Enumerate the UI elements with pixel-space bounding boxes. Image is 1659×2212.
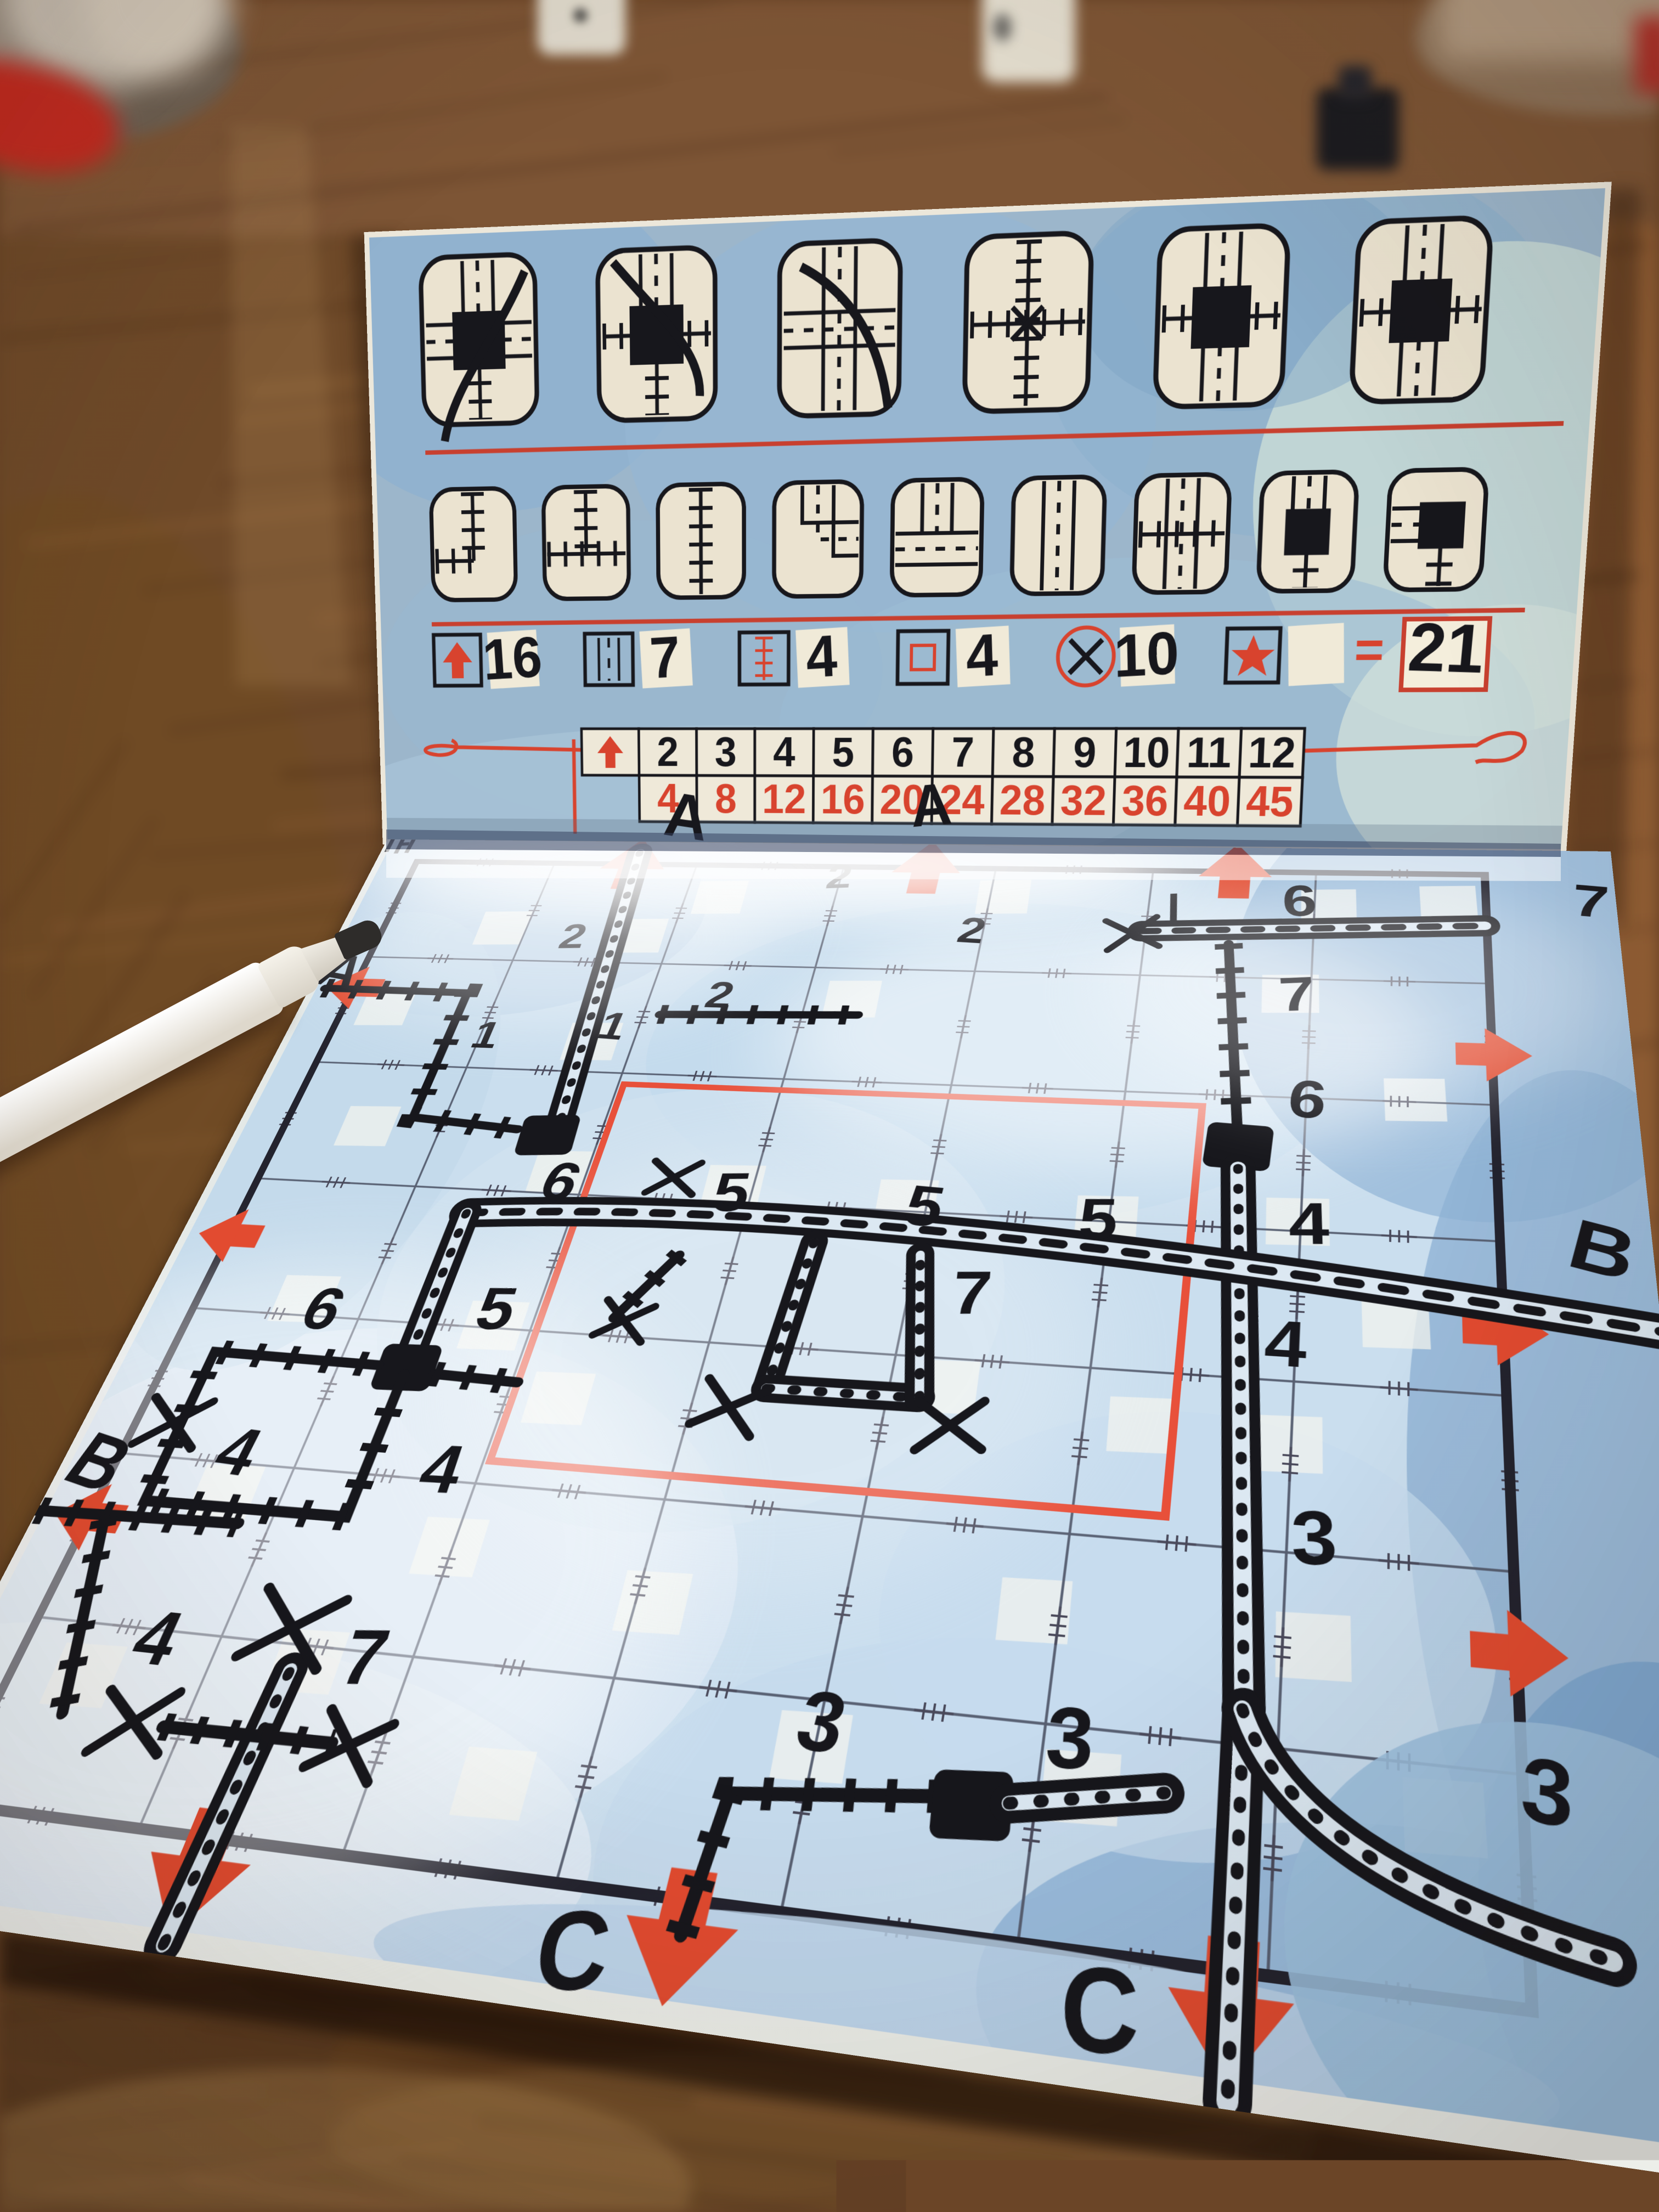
svg-text:7: 7: [951, 729, 975, 776]
svg-text:3: 3: [1043, 1689, 1097, 1788]
svg-text:28: 28: [999, 777, 1046, 824]
svg-text:A: A: [661, 778, 712, 849]
svg-text:2: 2: [657, 729, 679, 775]
svg-text:11: 11: [1186, 729, 1232, 777]
svg-text:12: 12: [762, 776, 806, 822]
svg-text:A: A: [908, 770, 953, 839]
svg-text:10: 10: [1122, 729, 1171, 777]
svg-text:4: 4: [1288, 1190, 1330, 1257]
svg-text:7: 7: [949, 1259, 995, 1327]
svg-text:7: 7: [648, 624, 682, 691]
svg-text:4: 4: [805, 623, 839, 690]
svg-text:8: 8: [1012, 729, 1036, 776]
svg-text:3: 3: [1519, 1736, 1575, 1849]
svg-text:12: 12: [1247, 729, 1296, 777]
svg-text:C: C: [1058, 1943, 1139, 2081]
svg-text:8: 8: [715, 776, 737, 822]
svg-text:10: 10: [1113, 619, 1180, 690]
svg-text:4: 4: [1262, 1306, 1308, 1381]
svg-text:5: 5: [832, 729, 854, 776]
svg-text:=: =: [1353, 622, 1385, 679]
svg-text:9: 9: [1073, 729, 1097, 777]
svg-text:36: 36: [1121, 777, 1169, 825]
svg-text:16: 16: [821, 776, 866, 823]
svg-text:32: 32: [1060, 777, 1107, 825]
svg-text:5: 5: [1076, 1187, 1120, 1251]
svg-text:7: 7: [1571, 875, 1610, 928]
svg-text:16: 16: [481, 624, 544, 692]
svg-text:3: 3: [1290, 1495, 1339, 1581]
svg-text:40: 40: [1183, 777, 1232, 825]
svg-text:21: 21: [1406, 608, 1488, 687]
svg-text:4: 4: [773, 729, 795, 776]
svg-text:4: 4: [965, 622, 999, 690]
svg-text:6: 6: [891, 729, 914, 776]
svg-text:3: 3: [715, 729, 737, 775]
svg-text:45: 45: [1245, 778, 1295, 826]
